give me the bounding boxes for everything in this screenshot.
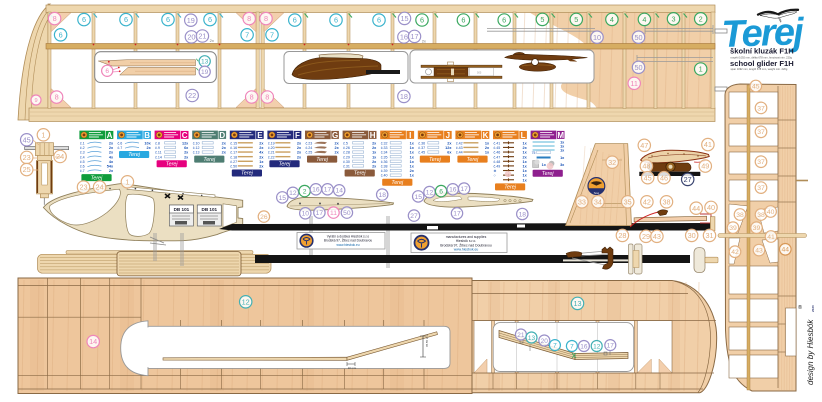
svg-text:2x: 2x: [410, 169, 415, 173]
svg-text:18: 18: [519, 211, 527, 218]
svg-text:38: 38: [757, 212, 765, 219]
svg-text:48: 48: [642, 162, 650, 171]
svg-text:15: 15: [414, 194, 422, 201]
svg-text:38: 38: [662, 197, 670, 206]
svg-text:H: H: [370, 131, 376, 140]
svg-text:42: 42: [731, 249, 739, 256]
svg-text:č.35: č.35: [381, 155, 388, 159]
svg-text:16: 16: [449, 187, 457, 194]
svg-text:B: B: [144, 131, 150, 140]
svg-text:50: 50: [634, 33, 642, 42]
svg-text:15: 15: [400, 14, 408, 23]
svg-text:54x: 54x: [107, 165, 114, 169]
svg-text:1: 1: [125, 177, 129, 186]
svg-text:8: 8: [247, 14, 251, 23]
svg-text:Terej: Terej: [166, 161, 179, 167]
svg-text:33: 33: [578, 197, 586, 206]
svg-text:Brodská 97, Žibec nad Doubravo: Brodská 97, Žibec nad Doubravou: [324, 238, 373, 243]
svg-text:49: 49: [701, 162, 709, 171]
svg-text:505: 505: [477, 70, 482, 74]
svg-text:DB 101: DB 101: [202, 207, 218, 212]
svg-text:17: 17: [460, 186, 468, 193]
svg-text:22: 22: [188, 91, 196, 100]
svg-text:Terej: Terej: [128, 152, 141, 158]
svg-text:6: 6: [334, 16, 338, 25]
svg-text:75: 75: [532, 151, 536, 155]
svg-text:2x: 2x: [184, 155, 189, 159]
svg-text:12: 12: [426, 190, 434, 197]
svg-text:11: 11: [330, 210, 337, 217]
svg-text:50: 50: [343, 210, 351, 217]
svg-text:č.9: č.9: [155, 146, 160, 150]
svg-text:39: 39: [753, 225, 761, 232]
svg-text:10 mm: 10 mm: [348, 366, 357, 370]
svg-text:Terej: Terej: [316, 157, 329, 163]
svg-text:4x: 4x: [259, 151, 264, 155]
svg-text:č.22: č.22: [268, 155, 275, 159]
svg-text:34: 34: [594, 197, 602, 206]
svg-text:1x: 1x: [410, 151, 415, 155]
svg-text:č.50: č.50: [230, 165, 237, 169]
svg-text:www.hiesbok.eu: www.hiesbok.eu: [454, 248, 479, 252]
svg-text:23: 23: [23, 153, 31, 162]
svg-text:č.34: č.34: [381, 151, 388, 155]
svg-text:2x: 2x: [372, 146, 377, 150]
svg-text:11: 11: [630, 79, 638, 88]
svg-text:1x: 1x: [485, 141, 490, 145]
svg-text:č.46: č.46: [494, 151, 501, 155]
svg-text:D: D: [219, 131, 225, 140]
svg-text:design by Hiesbók: design by Hiesbók: [806, 319, 815, 385]
svg-text:č.25: č.25: [306, 151, 313, 155]
svg-text:č.7: č.7: [118, 146, 123, 150]
svg-text:12: 12: [242, 297, 250, 306]
svg-text:4x: 4x: [109, 160, 114, 164]
svg-text:41: 41: [767, 234, 775, 241]
svg-text:Terej: Terej: [354, 171, 367, 177]
svg-text:2x: 2x: [222, 146, 227, 150]
svg-text:16: 16: [400, 33, 408, 42]
svg-text:20: 20: [187, 33, 195, 42]
svg-text:1x: 1x: [259, 160, 264, 164]
svg-text:č.6: č.6: [80, 165, 85, 169]
svg-text:24: 24: [96, 183, 104, 192]
svg-text:2020: 2020: [811, 305, 815, 312]
svg-text:1x: 1x: [522, 151, 527, 155]
svg-text:5: 5: [574, 15, 578, 24]
svg-text:6: 6: [124, 15, 128, 24]
svg-text:12x: 12x: [445, 146, 452, 150]
svg-text:17: 17: [316, 210, 324, 217]
svg-text:2x: 2x: [259, 141, 264, 145]
svg-text:2x: 2x: [297, 141, 302, 145]
svg-text:č.36: č.36: [381, 160, 388, 164]
svg-text:37: 37: [757, 105, 765, 112]
svg-text:5: 5: [540, 15, 544, 24]
svg-text:2x: 2x: [184, 151, 189, 155]
svg-text:2x: 2x: [334, 151, 339, 155]
svg-text:2x: 2x: [447, 141, 452, 145]
svg-text:⊕: ⊕: [494, 169, 497, 173]
svg-text:8: 8: [53, 14, 57, 23]
svg-text:7: 7: [270, 30, 274, 39]
svg-text:6: 6: [208, 15, 212, 24]
svg-text:10x: 10x: [144, 141, 151, 145]
svg-text:Terej: Terej: [467, 157, 480, 163]
svg-text:2x: 2x: [372, 160, 377, 164]
svg-text:2x: 2x: [259, 155, 264, 159]
svg-text:17: 17: [453, 211, 461, 218]
svg-text:16: 16: [312, 187, 320, 194]
svg-text:2x: 2x: [297, 151, 302, 155]
svg-text:27: 27: [684, 175, 692, 184]
svg-text:Terej: Terej: [542, 171, 555, 177]
svg-text:2x: 2x: [372, 165, 377, 169]
svg-text:2x: 2x: [109, 169, 114, 173]
svg-text:13: 13: [201, 59, 209, 66]
svg-text:47: 47: [640, 141, 648, 150]
svg-text:DB 101: DB 101: [174, 207, 190, 212]
svg-text:8: 8: [265, 93, 269, 102]
svg-text:40: 40: [767, 209, 775, 216]
svg-text:14: 14: [335, 188, 343, 195]
svg-text:I: I: [409, 131, 411, 140]
svg-text:1x: 1x: [522, 169, 527, 173]
svg-text:14: 14: [89, 337, 97, 346]
svg-text:2x: 2x: [109, 146, 114, 150]
svg-text:M: M: [557, 131, 564, 140]
svg-text:č.49: č.49: [494, 165, 501, 169]
svg-text:18: 18: [378, 192, 386, 199]
svg-text:č.32: č.32: [381, 141, 388, 145]
svg-text:17: 17: [410, 32, 418, 41]
svg-text:2x: 2x: [210, 38, 214, 43]
svg-text:2x: 2x: [297, 146, 302, 150]
svg-text:1: 1: [699, 65, 703, 74]
svg-text:13: 13: [573, 299, 581, 308]
svg-text:6: 6: [59, 30, 63, 39]
svg-text:25: 25: [23, 165, 31, 174]
svg-text:2x: 2x: [522, 146, 527, 150]
svg-text:28: 28: [618, 231, 626, 240]
svg-text:Terej: Terej: [279, 161, 292, 167]
svg-text:78.55 mm: 78.55 mm: [425, 334, 429, 347]
svg-text:č.39: č.39: [381, 169, 388, 173]
svg-text:2x: 2x: [222, 141, 227, 145]
svg-text:3: 3: [671, 14, 675, 23]
svg-text:č.5: č.5: [343, 141, 348, 145]
svg-text:45: 45: [752, 83, 760, 90]
svg-text:č.11: č.11: [155, 151, 162, 155]
svg-text:1x: 1x: [522, 174, 527, 178]
svg-text:č.30: č.30: [343, 160, 350, 164]
svg-text:1x: 1x: [410, 146, 415, 150]
svg-text:16: 16: [580, 343, 588, 350]
svg-text:č.27: č.27: [230, 160, 237, 164]
svg-text:12: 12: [593, 343, 601, 350]
svg-text:č.47: č.47: [494, 155, 501, 159]
svg-text:2x: 2x: [109, 151, 114, 155]
svg-text:č.43: č.43: [456, 146, 463, 150]
svg-text:č.17: č.17: [230, 151, 237, 155]
svg-text:č.45: č.45: [418, 151, 425, 155]
svg-text:1x: 1x: [410, 141, 415, 145]
svg-text:č.1: č.1: [80, 141, 85, 145]
svg-text:43: 43: [755, 248, 763, 255]
svg-text:42: 42: [643, 197, 651, 206]
svg-text:10: 10: [593, 33, 601, 42]
svg-text:44: 44: [782, 247, 790, 254]
svg-text:2x: 2x: [334, 141, 339, 145]
svg-text:18: 18: [400, 92, 408, 101]
svg-text:1x: 1x: [410, 155, 415, 159]
svg-text:2x: 2x: [259, 146, 264, 150]
svg-text:37: 37: [757, 129, 765, 136]
svg-text:1: 1: [41, 130, 45, 139]
svg-text:G: G: [332, 131, 338, 140]
svg-text:č.12: č.12: [193, 146, 200, 150]
svg-text:7: 7: [553, 342, 557, 349]
svg-text:7: 7: [245, 30, 249, 39]
svg-text:31: 31: [705, 231, 713, 240]
svg-text:1x: 1x: [522, 160, 527, 164]
svg-text:č.8: č.8: [155, 141, 160, 145]
svg-text:38: 38: [736, 212, 744, 219]
svg-text:35: 35: [624, 197, 632, 206]
svg-text:č.21: č.21: [268, 151, 275, 155]
svg-text:19: 19: [201, 69, 209, 76]
svg-text:č.33: č.33: [381, 146, 388, 150]
svg-text:č.3: č.3: [80, 151, 85, 155]
svg-text:7: 7: [570, 343, 574, 350]
svg-text:1x: 1x: [410, 174, 415, 178]
svg-text:○: ○: [494, 174, 496, 178]
svg-text:26: 26: [260, 214, 268, 221]
svg-text:č.37: č.37: [418, 146, 425, 150]
svg-text:27: 27: [410, 213, 418, 220]
svg-text:č.4: č.4: [80, 155, 85, 159]
svg-text:2: 2: [303, 189, 307, 196]
svg-text:F: F: [295, 131, 300, 140]
svg-text:4x: 4x: [109, 155, 114, 159]
svg-text:45: 45: [23, 135, 31, 144]
svg-text:č.41: č.41: [494, 141, 501, 145]
svg-text:4: 4: [610, 15, 614, 24]
svg-text:24: 24: [56, 152, 64, 161]
svg-text:32: 32: [608, 158, 616, 167]
svg-text:č.44: č.44: [456, 151, 463, 155]
svg-text:č.5: č.5: [80, 160, 85, 164]
svg-text:8: 8: [264, 14, 268, 23]
svg-text:1x: 1x: [372, 151, 377, 155]
svg-text:č.15: č.15: [230, 141, 237, 145]
svg-text:6: 6: [502, 16, 506, 25]
svg-text:J: J: [446, 131, 450, 140]
svg-text:č.7: č.7: [80, 169, 85, 173]
svg-text:40: 40: [707, 203, 715, 212]
svg-text:1x: 1x: [410, 160, 415, 164]
svg-text:2x: 2x: [522, 155, 527, 159]
svg-text:č.38: č.38: [381, 165, 388, 169]
svg-text:E: E: [257, 131, 263, 140]
svg-text:č.28: č.28: [343, 151, 350, 155]
svg-text:č.19: č.19: [268, 141, 275, 145]
svg-text:3x: 3x: [560, 163, 565, 167]
svg-text:č.13: č.13: [193, 151, 200, 155]
svg-text:1x: 1x: [410, 165, 415, 169]
svg-text:50: 50: [634, 63, 642, 72]
svg-text:6: 6: [461, 16, 465, 25]
svg-text:8: 8: [55, 93, 59, 102]
svg-text:23: 23: [79, 183, 87, 192]
svg-text:č.16: č.16: [230, 146, 237, 150]
svg-text:č.26: č.26: [343, 146, 350, 150]
svg-text:2x: 2x: [259, 165, 264, 169]
svg-text:6: 6: [293, 16, 297, 25]
svg-text:21: 21: [517, 332, 525, 339]
svg-text:43: 43: [653, 232, 661, 241]
svg-text:č.42: č.42: [456, 141, 463, 145]
svg-text:30: 30: [688, 231, 696, 240]
svg-text:8: 8: [250, 93, 254, 102]
svg-text:1x: 1x: [372, 155, 377, 159]
svg-text:č.40: č.40: [381, 174, 388, 178]
svg-text:15: 15: [279, 195, 287, 202]
svg-text:6: 6: [82, 15, 86, 24]
svg-text:span 1092 mm, length 678 mm, w: span 1092 mm, length 678 mm, weight min.…: [731, 67, 788, 71]
svg-text:Terej: Terej: [203, 157, 216, 163]
svg-text:29: 29: [642, 232, 650, 241]
svg-text:2x: 2x: [146, 146, 151, 150]
svg-text:č.45: č.45: [494, 146, 501, 150]
svg-text:2x: 2x: [372, 141, 377, 145]
svg-text:2x: 2x: [334, 146, 339, 150]
svg-text:6x: 6x: [447, 151, 452, 155]
svg-text:44: 44: [692, 204, 700, 213]
svg-text:č.20: č.20: [268, 146, 275, 150]
svg-text:č.36: č.36: [418, 141, 425, 145]
svg-text:K: K: [483, 131, 489, 140]
svg-text:č.6: č.6: [118, 141, 123, 145]
svg-text:Terej: Terej: [504, 185, 517, 191]
svg-text:2x: 2x: [222, 151, 227, 155]
svg-text:Terej: Terej: [391, 180, 404, 186]
svg-text:C: C: [182, 131, 188, 140]
svg-text:1x: 1x: [522, 141, 527, 145]
svg-text:školní kluzák F1H: školní kluzák F1H: [730, 47, 794, 56]
svg-text:L: L: [521, 131, 526, 140]
svg-text:12x: 12x: [182, 141, 189, 145]
svg-text:school glider F1H: school glider F1H: [730, 59, 794, 68]
svg-text:12: 12: [289, 190, 297, 197]
svg-text:č.2: č.2: [80, 146, 85, 150]
svg-text:č.29: č.29: [343, 155, 350, 159]
svg-text:č.10: č.10: [193, 141, 200, 145]
svg-text:2x: 2x: [109, 141, 114, 145]
svg-text:Terej: Terej: [241, 171, 254, 177]
svg-text:6: 6: [420, 16, 424, 25]
svg-text:37: 37: [757, 159, 765, 166]
svg-text:2x: 2x: [485, 146, 490, 150]
svg-text:1x: 1x: [485, 151, 490, 155]
svg-text:37: 37: [757, 185, 765, 192]
svg-text:10: 10: [302, 211, 310, 218]
svg-text:č.48: č.48: [494, 160, 501, 164]
svg-text:2x: 2x: [297, 155, 302, 159]
svg-text:41: 41: [704, 140, 712, 149]
svg-text:č.23: č.23: [306, 141, 313, 145]
svg-text:45: 45: [644, 173, 652, 182]
svg-text:Terej: Terej: [91, 175, 104, 181]
svg-text:19: 19: [187, 16, 195, 25]
svg-text:13: 13: [528, 335, 536, 342]
svg-text:20: 20: [541, 338, 549, 345]
svg-text:17: 17: [324, 187, 332, 194]
svg-text:www.hiesbok.eu: www.hiesbok.eu: [336, 243, 359, 247]
svg-text:č.14: č.14: [155, 155, 162, 159]
svg-text:2x: 2x: [422, 39, 426, 44]
svg-text:1x: 1x: [560, 149, 565, 153]
svg-text:6: 6: [377, 16, 381, 25]
svg-text:A: A: [107, 131, 113, 140]
svg-text:1x: 1x: [522, 165, 527, 169]
svg-text:6: 6: [166, 15, 170, 24]
svg-text:1x: 1x: [542, 163, 547, 167]
svg-text:2: 2: [699, 14, 703, 23]
svg-text:9: 9: [34, 98, 37, 104]
svg-text:21: 21: [198, 32, 206, 41]
svg-text:č.18: č.18: [230, 155, 237, 159]
svg-text:č.31: č.31: [343, 165, 350, 169]
svg-text:1x: 1x: [560, 156, 565, 160]
svg-text:Terej: Terej: [429, 157, 442, 163]
svg-text:46: 46: [660, 173, 668, 182]
svg-text:Terej: Terej: [594, 192, 600, 195]
svg-text:39: 39: [729, 225, 737, 232]
svg-text:4: 4: [642, 15, 646, 24]
svg-text:®: ®: [798, 304, 802, 311]
svg-text:1x: 1x: [522, 178, 527, 182]
svg-text:č.24: č.24: [306, 146, 313, 150]
svg-text:17: 17: [607, 342, 615, 349]
svg-text:6: 6: [439, 189, 443, 196]
svg-text:6: 6: [105, 68, 109, 75]
svg-text:6x: 6x: [184, 146, 189, 150]
